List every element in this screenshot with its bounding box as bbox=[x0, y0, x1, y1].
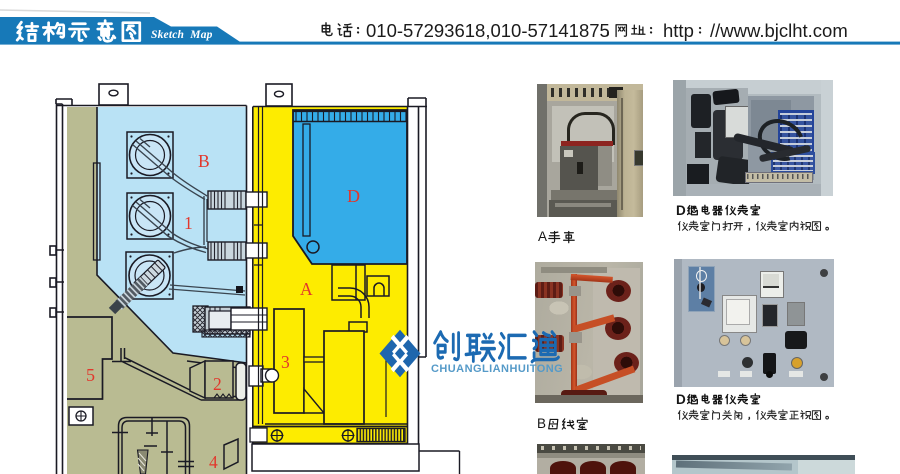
svg-text:3: 3 bbox=[281, 352, 290, 372]
svg-text:4: 4 bbox=[209, 452, 218, 472]
svg-text:1: 1 bbox=[184, 213, 193, 233]
svg-text:2: 2 bbox=[213, 374, 222, 394]
svg-text:5: 5 bbox=[86, 365, 95, 385]
svg-text:B: B bbox=[198, 151, 210, 171]
svg-text:D: D bbox=[347, 186, 360, 206]
svg-text:A: A bbox=[300, 279, 313, 299]
